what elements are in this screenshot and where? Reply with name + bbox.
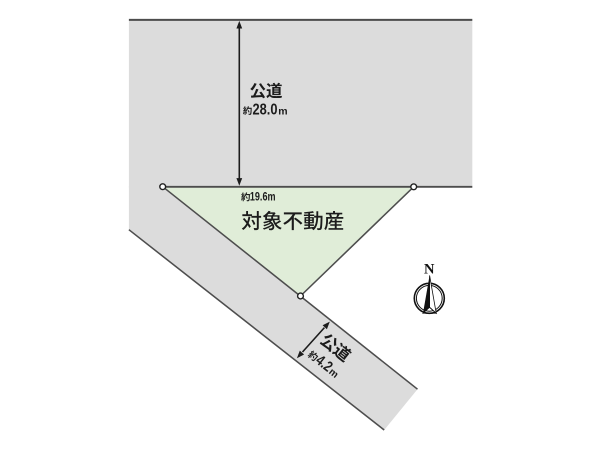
svg-text:m: m — [278, 106, 287, 118]
svg-text:N: N — [424, 262, 435, 278]
svg-text:28.0: 28.0 — [253, 102, 278, 119]
svg-text:19.6m: 19.6m — [250, 189, 276, 203]
